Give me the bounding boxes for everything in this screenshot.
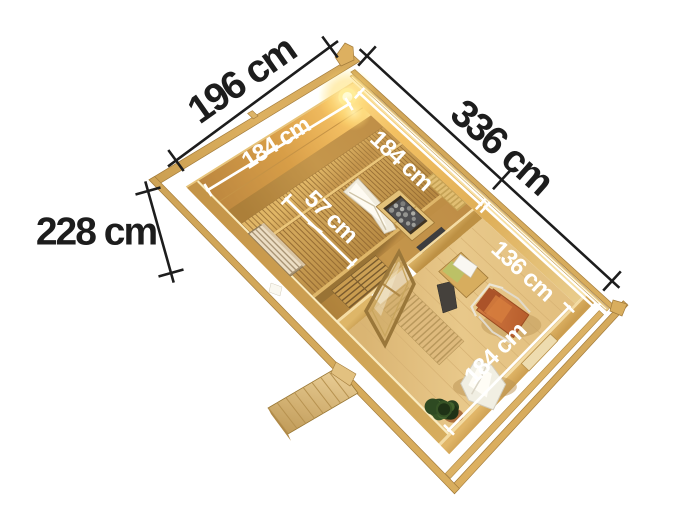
svg-text:228 cm: 228 cm: [36, 210, 157, 253]
